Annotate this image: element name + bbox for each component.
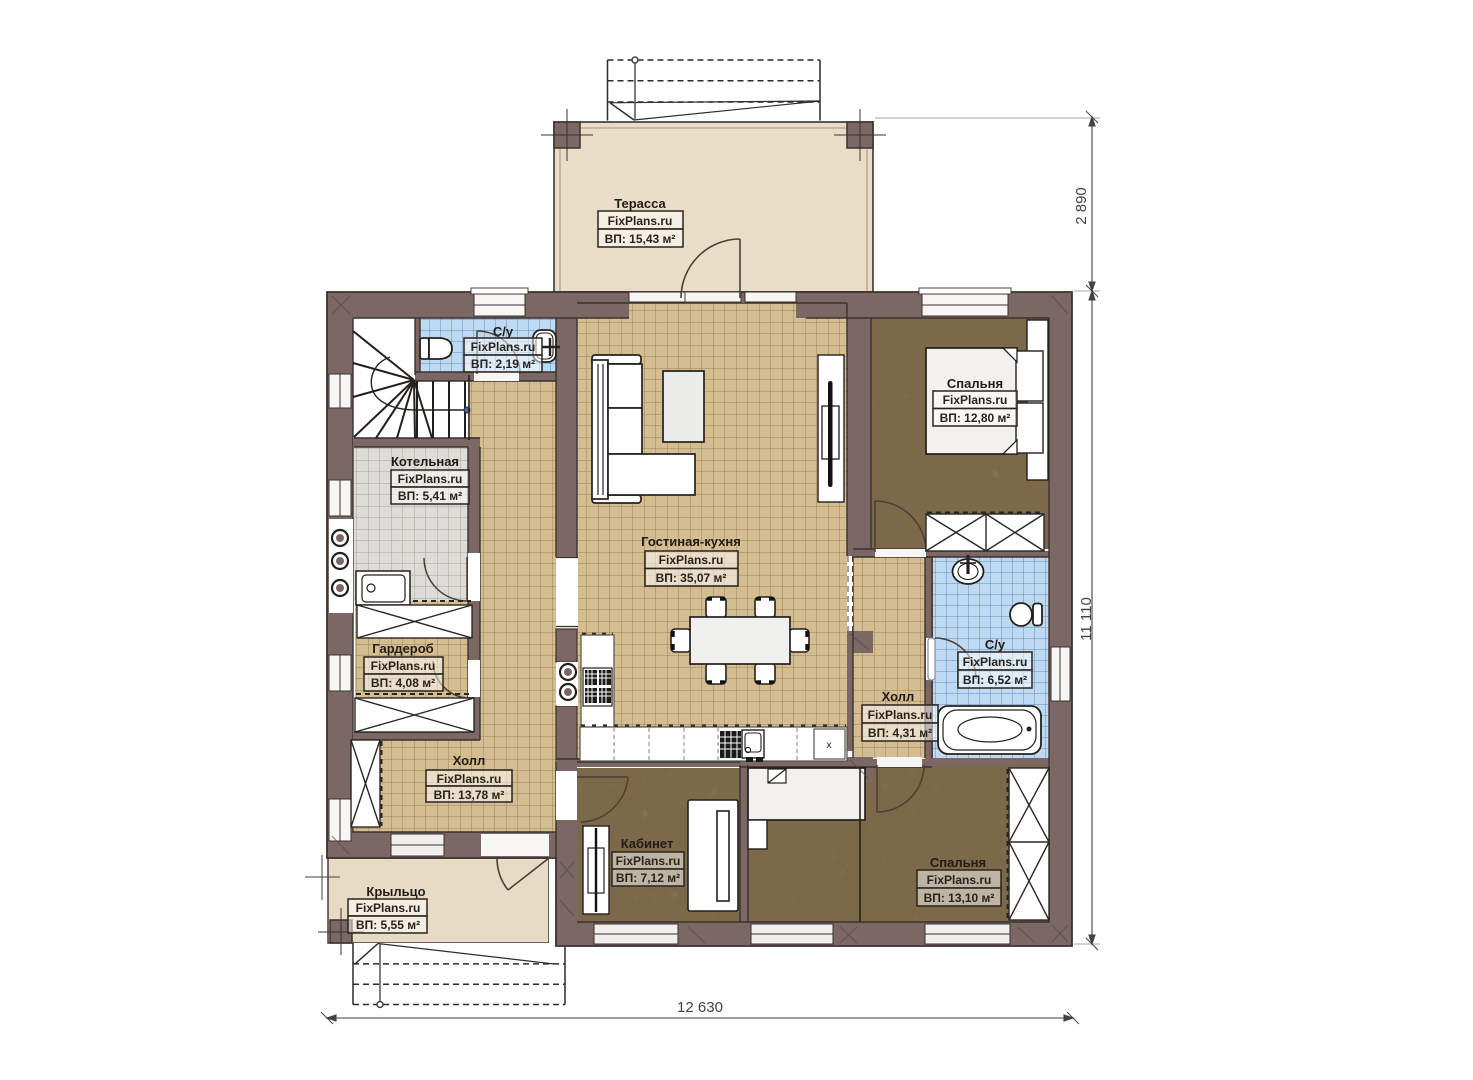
svg-text:FixPlans.ru: FixPlans.ru <box>356 901 421 915</box>
svg-text:Терасса: Терасса <box>614 196 666 211</box>
svg-text:FixPlans.ru: FixPlans.ru <box>371 659 436 673</box>
svg-text:Котельная: Котельная <box>391 454 459 469</box>
svg-text:Крыльцо: Крыльцо <box>366 884 425 899</box>
svg-text:FixPlans.ru: FixPlans.ru <box>616 854 681 868</box>
svg-text:FixPlans.ru: FixPlans.ru <box>398 472 463 486</box>
svg-text:2 890: 2 890 <box>1073 187 1090 225</box>
svg-text:FixPlans.ru: FixPlans.ru <box>868 708 933 722</box>
svg-text:ВП: 6,52 м²: ВП: 6,52 м² <box>963 673 1027 687</box>
svg-text:Кабинет: Кабинет <box>621 836 674 851</box>
svg-text:FixPlans.ru: FixPlans.ru <box>963 655 1028 669</box>
svg-text:ВП: 12,80 м²: ВП: 12,80 м² <box>940 411 1011 425</box>
svg-text:FixPlans.ru: FixPlans.ru <box>471 340 536 354</box>
svg-text:FixPlans.ru: FixPlans.ru <box>659 553 724 567</box>
svg-text:ВП: 13,78 м²: ВП: 13,78 м² <box>434 788 505 802</box>
svg-text:Гостиная-кухня: Гостиная-кухня <box>641 534 741 549</box>
svg-text:ВП: 4,08 м²: ВП: 4,08 м² <box>371 676 435 690</box>
svg-text:ВП: 7,12 м²: ВП: 7,12 м² <box>616 871 680 885</box>
svg-text:ВП: 2,19 м²: ВП: 2,19 м² <box>471 357 535 371</box>
svg-text:Спальня: Спальня <box>930 855 986 870</box>
svg-text:ВП: 5,41 м²: ВП: 5,41 м² <box>398 489 462 503</box>
svg-text:ВП: 13,10 м²: ВП: 13,10 м² <box>924 891 995 905</box>
svg-text:11 110: 11 110 <box>1078 597 1095 641</box>
svg-text:x: x <box>826 739 832 751</box>
svg-text:FixPlans.ru: FixPlans.ru <box>608 214 673 228</box>
svg-text:FixPlans.ru: FixPlans.ru <box>927 873 992 887</box>
svg-text:ВП: 4,31 м²: ВП: 4,31 м² <box>868 726 932 740</box>
svg-text:С/у: С/у <box>985 637 1006 652</box>
svg-text:FixPlans.ru: FixPlans.ru <box>943 393 1008 407</box>
svg-text:FixPlans.ru: FixPlans.ru <box>437 772 502 786</box>
svg-text:Гардероб: Гардероб <box>372 641 433 656</box>
svg-text:ВП: 15,43 м²: ВП: 15,43 м² <box>605 232 676 246</box>
svg-text:ВП: 5,55 м²: ВП: 5,55 м² <box>356 918 420 932</box>
svg-text:Спальня: Спальня <box>947 376 1003 391</box>
svg-text:ВП: 35,07 м²: ВП: 35,07 м² <box>656 571 727 585</box>
svg-text:Холл: Холл <box>453 753 486 768</box>
svg-text:С/у: С/у <box>493 324 514 339</box>
svg-text:Холл: Холл <box>882 689 915 704</box>
svg-text:12 630: 12 630 <box>677 999 723 1016</box>
